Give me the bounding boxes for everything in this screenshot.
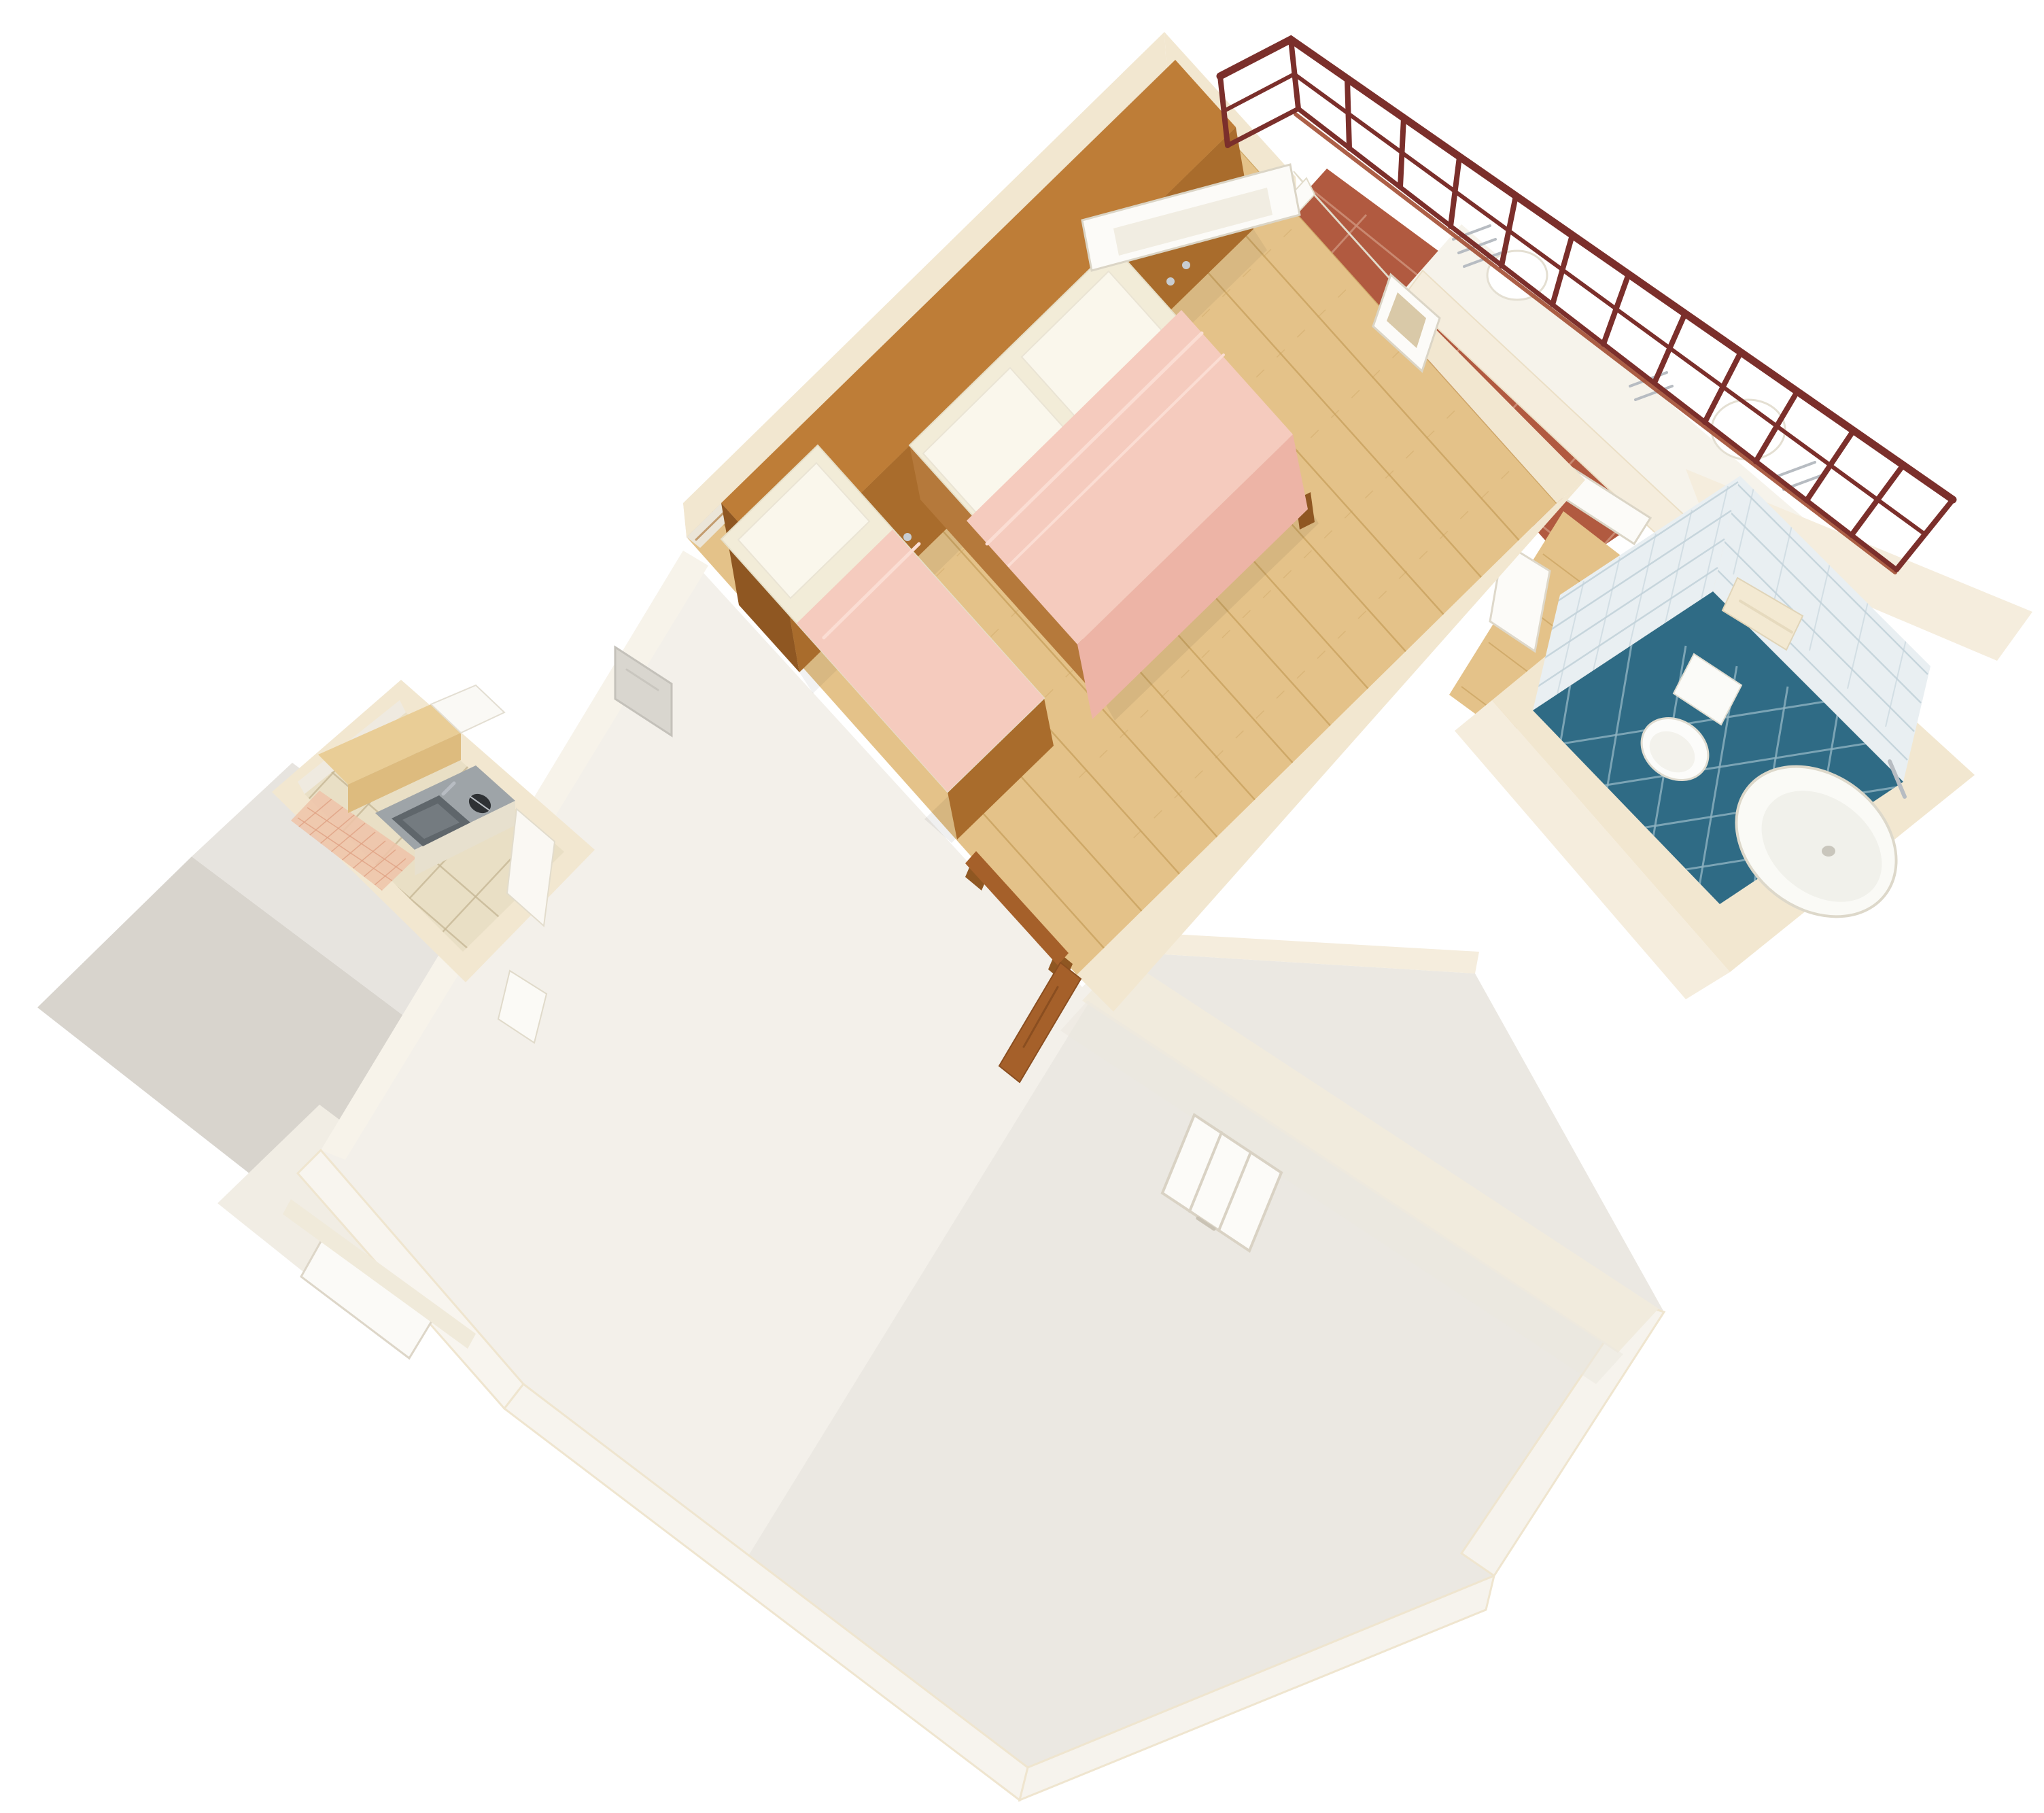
railing-post-12 bbox=[1852, 465, 1903, 535]
railing-post-02 bbox=[1347, 79, 1349, 148]
railing-post-03 bbox=[1400, 118, 1404, 187]
wardrobe-handle-2 bbox=[1166, 277, 1175, 286]
railing-post-11 bbox=[1807, 430, 1854, 500]
drying-rack-3a bbox=[1778, 462, 1815, 476]
floorplan-3d-render bbox=[0, 0, 2044, 1813]
railing-post-13 bbox=[1896, 500, 1953, 570]
wardrobe-handle-1 bbox=[1182, 261, 1190, 269]
shower-drain bbox=[1822, 846, 1835, 857]
wardrobe-handle-3 bbox=[903, 533, 912, 541]
railing-post-07 bbox=[1604, 274, 1629, 344]
railing-post-06 bbox=[1553, 235, 1572, 305]
railing-post-01 bbox=[1291, 39, 1298, 109]
railing-post-08 bbox=[1655, 313, 1685, 383]
floorplan-stage bbox=[0, 0, 2044, 1813]
